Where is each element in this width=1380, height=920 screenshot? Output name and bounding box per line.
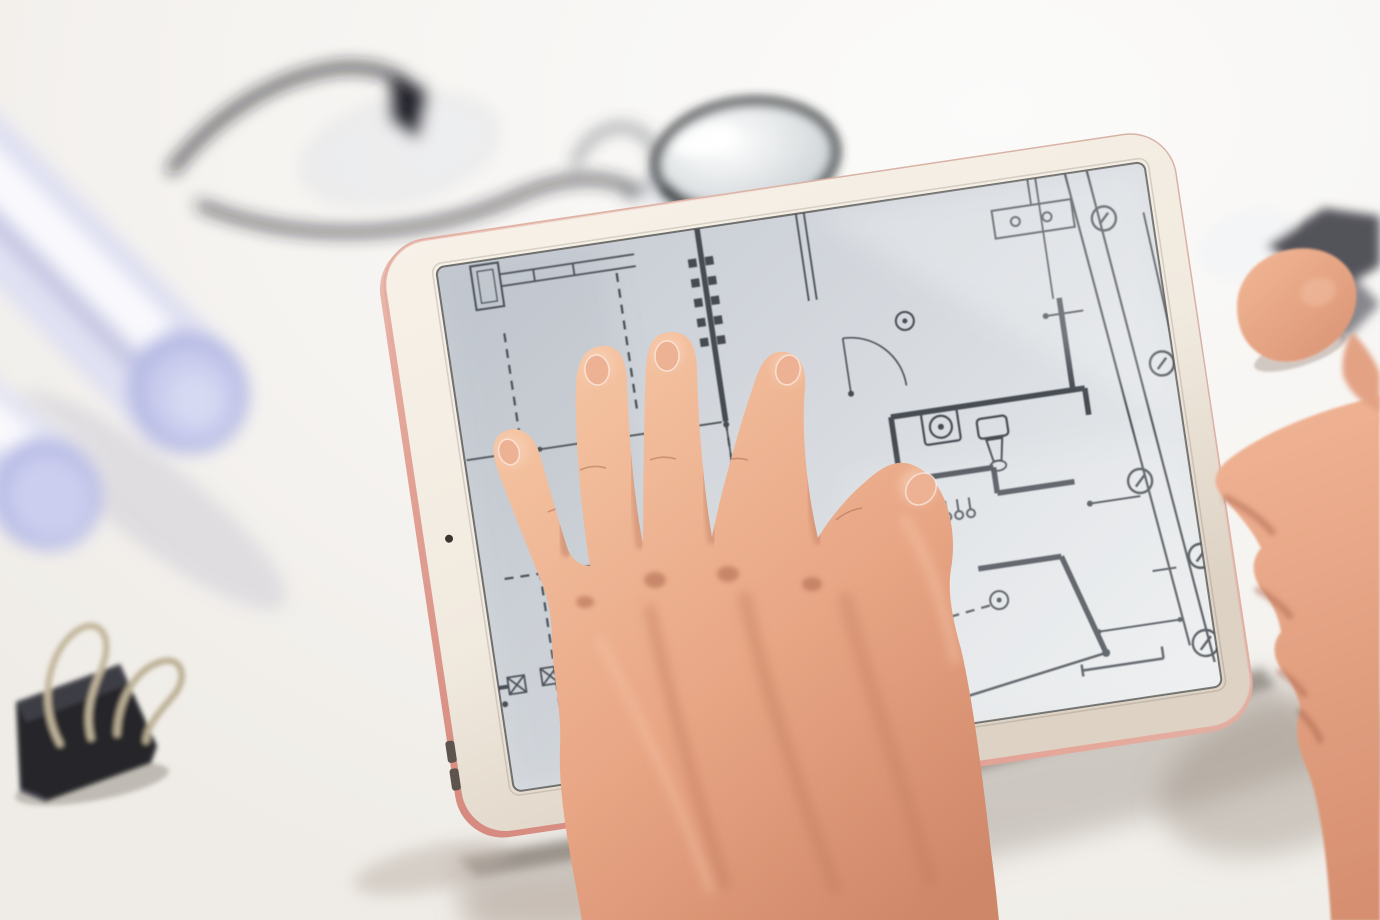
scene-svg	[0, 0, 1380, 920]
middle-nail	[654, 341, 679, 372]
photo: Two hands using a rose-gold tablet that …	[0, 0, 1380, 920]
